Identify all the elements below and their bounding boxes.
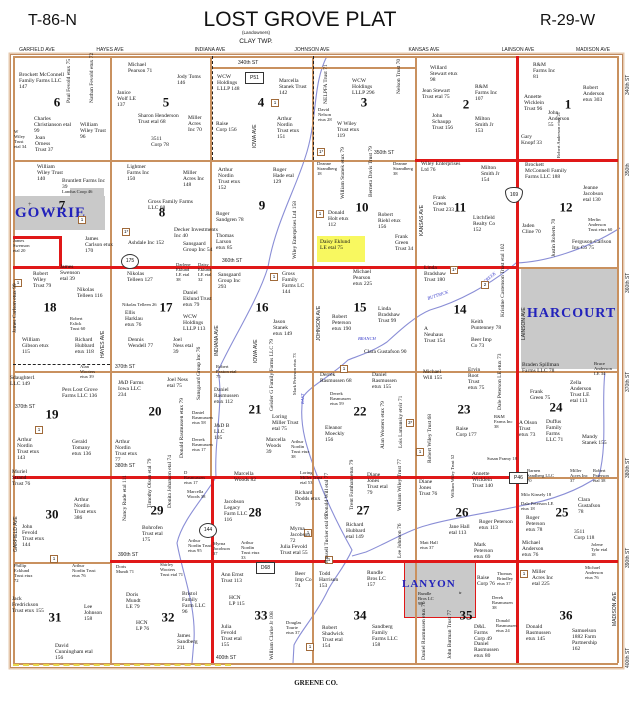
- parcel-label: Brockett McConnell Family Farms LLC 188: [525, 162, 569, 180]
- parcel-label: Thomas Larson etux 85: [216, 233, 242, 251]
- parcel-label: Daisy Eklund LE etal 32: [198, 262, 217, 282]
- parcel-label: Ellis Harklau etux 76: [125, 310, 151, 328]
- section-number: 3: [361, 96, 368, 109]
- parcel-label: Bruce Anderson LE 34: [594, 361, 615, 376]
- parcel-label: Annette Wicklein Trust 140: [472, 471, 500, 489]
- parcel-label: Milton Smith Jr 153: [475, 116, 503, 134]
- parcel-label: Michael Will 155: [423, 369, 447, 381]
- section-badge: 2: [481, 281, 489, 289]
- section-badge: 3*: [406, 419, 414, 427]
- road-label: GARFIELD AVE: [14, 516, 19, 552]
- parcel-label: Timothy Olson etal 79: [147, 459, 153, 508]
- parcel-label: Dennis Wendell 77: [128, 337, 154, 349]
- road: [516, 56, 519, 663]
- parcel-label: Robert Wiley Trust 79: [33, 271, 57, 289]
- parcel-label: Kristine Castenson Trust etal 102: [500, 244, 506, 317]
- parcel-label: Shirley Wooters Trust etal 71: [160, 562, 185, 577]
- parcel-label: Derrek Rasmussen etux 17: [192, 437, 211, 452]
- parcel-label: Bohrofen Trust etal 175: [142, 525, 170, 543]
- parcel-label: NELPFA Trust 71: [323, 64, 329, 104]
- road-label: 380th ST: [115, 464, 135, 469]
- parcel-label: Dale Peterson LE etux 73: [497, 353, 503, 410]
- parcel-label: David Cunningham etal 156: [55, 643, 93, 661]
- parcel-label: Frank Green Trust 233: [433, 195, 457, 213]
- highway-marker-175: 175: [121, 254, 139, 269]
- section-number: 20: [149, 405, 162, 418]
- road-label: 340th ST: [238, 61, 258, 66]
- section-number: 9: [259, 199, 266, 212]
- parcel-label: Trent Farnham etux 79: [349, 460, 355, 510]
- road-label: 370th ST: [15, 405, 35, 410]
- section-number: 23: [458, 403, 471, 416]
- parcel-label: William Wiley Trust 140: [37, 164, 65, 182]
- plat-map-page: T-86-N LOST GROVE PLAT (Landowners) CLAY…: [0, 0, 635, 720]
- parcel-label: R&M Farms Inc 81: [533, 62, 557, 80]
- road: [617, 56, 619, 663]
- parcel-label: A Olson Trust etux 73: [519, 420, 541, 438]
- parcel-label: John Schaupp Trust 156: [432, 113, 460, 131]
- road: [516, 267, 618, 269]
- parcel-label: Lee Johnson 158: [84, 604, 110, 622]
- parcel-label: Daniel Rasmussen etux 112: [214, 387, 242, 405]
- parcel-label: Michael Pearson 71: [128, 62, 160, 74]
- parcel-label: Lee Johnson 76: [397, 523, 403, 558]
- parcel-label: Myrna Jacobson 37: [213, 541, 235, 556]
- parcel-label: Marcella Stanek Trust 142: [279, 78, 307, 96]
- section-number: 19: [46, 408, 59, 421]
- parcel-label: Miller Acres Inc 37: [570, 468, 590, 483]
- parcel-label: Sharon Henderson Trust etal 68: [138, 113, 182, 125]
- highway-marker-P46: P46: [509, 472, 528, 484]
- town-label-harcourt: HARCOURT: [527, 306, 616, 322]
- parcel-label: Raise Corp 156: [216, 121, 238, 133]
- section-number: 1: [565, 98, 572, 111]
- parcel-label: Robert Peterson etal 38: [593, 468, 613, 483]
- parcel-label: Sansgaard Group Inc 76: [196, 347, 202, 400]
- parcel-label: Marcella Woods 39: [266, 437, 288, 455]
- parcel-label: Samuelson 1882 Farm Partnership 162: [572, 628, 606, 652]
- parcel-label: Frank Green 75: [530, 389, 552, 401]
- town-label-lanyon: LANYON: [402, 578, 456, 590]
- parcel-label: Milo Kinsely 18: [521, 492, 561, 497]
- parcel-label: Rundle Bros LC 157: [367, 570, 389, 588]
- parcel-label: Duffus Family Farms LLC 71: [546, 419, 570, 443]
- parcel-label: W Wiley Trust etux 119: [337, 121, 361, 139]
- parcel-label: Pers Lost Grove Farms LLC 136: [62, 387, 106, 399]
- parcel-label: Gross Family Farms LLC 68: [148, 199, 204, 211]
- parcel-label: Julia Fevold Trust etal 55: [280, 544, 308, 556]
- parcel-label: Susan Framy 18: [487, 456, 517, 461]
- road: [212, 56, 213, 160]
- parcel-label: Arthur Nordin Trust etux 38: [291, 439, 310, 459]
- section-number: 33: [255, 609, 268, 622]
- parcel-label: John Burman Trust 77: [447, 610, 453, 659]
- parcel-label: Nathan Fevold etux 72: [89, 53, 95, 103]
- parcel-label: Daniel Rasmussen etux 80: [474, 641, 502, 659]
- parcel-label: Nancy Rude etal 111: [122, 475, 128, 521]
- parcel-label: Arthur Nordin Trust etux 76: [72, 563, 98, 578]
- parcel-label: Deanne Strandberg 38: [393, 161, 414, 176]
- parcel-label: Sansgaard Group Inc 293: [218, 272, 244, 290]
- parcel-label: Braden Spillman Farms LLC 78: [522, 362, 566, 374]
- parcel-label: Darlene Eklund LE etal 38: [176, 262, 195, 282]
- section-badge: 1: [270, 273, 278, 281]
- parcel-label: Donald Rasmussen etux 24: [496, 618, 515, 633]
- road: [211, 477, 214, 663]
- road: [13, 160, 415, 162]
- parcel-label: Robert Peterson etux 190: [332, 314, 358, 332]
- section-badge: 1: [316, 210, 324, 218]
- road-label: INDIANA AVE: [195, 48, 226, 53]
- parcel-label: Donald Will etal 77: [324, 473, 330, 516]
- highway-marker-D68: D68: [256, 562, 275, 574]
- parcel-label: Gross Family Farms LC 144: [282, 271, 306, 295]
- section-number: 16: [256, 301, 269, 314]
- parcel-label: Zella Anderson Trust LE etal 113: [570, 380, 598, 404]
- parcel-label: Wiley Enterprises Ltd 158: [292, 201, 298, 259]
- road-label: INDIANA AVE: [215, 325, 220, 356]
- road-label: JOHNSON AVE: [294, 48, 329, 53]
- section-badge: 1: [306, 643, 314, 651]
- road-label: 380th ST: [626, 458, 631, 478]
- section-number: 24: [550, 401, 563, 414]
- parcel-label: Michael Pearson etux 225: [353, 269, 381, 287]
- section-number: 35: [460, 609, 473, 622]
- parcel-label: Arthur Nordin Trust etux 33: [241, 540, 261, 560]
- parcel-label: WCW Holdings LLLP 113: [183, 314, 213, 332]
- parcel-label: Roger Peterson etux 113: [479, 519, 523, 531]
- parcel-label: David Nelson etux 28: [318, 107, 338, 122]
- parcel-label: D Rasmussen etux 17: [184, 470, 201, 485]
- parcel-label: Lightner Farms Inc 150: [127, 164, 155, 182]
- parcel-label: Julia Fevold Trust etal 155: [221, 624, 245, 648]
- parcel-label: Richard Hubbard etal 149: [346, 522, 374, 540]
- parcel-label: Mark Peterson etux 73: [292, 353, 297, 395]
- parcel-label: Geisler G Family Farms LLC 79: [269, 339, 275, 411]
- section-number: 15: [354, 301, 367, 314]
- road-label: 400th ST: [626, 648, 631, 668]
- parcel-label: Muriel Strand Trust 76: [12, 469, 36, 487]
- parcel-label: Linda Bradshaw Trust 99: [378, 306, 406, 324]
- road-label: IOWA AVE: [254, 339, 259, 363]
- parcel-label: Diane Jones Trust etal 79: [367, 472, 391, 496]
- parcel-label: Derrek Rasmussen 68: [320, 372, 360, 384]
- county-label: GREENE CO.: [294, 679, 338, 687]
- road-label: 350th ST: [374, 151, 394, 156]
- parcel-label: Landus Coop 46: [62, 189, 108, 194]
- parcel-label: A Neuhaus Trust 154: [424, 326, 448, 344]
- creek-label: BRANCH: [358, 337, 376, 342]
- road-label: 370th ST: [626, 372, 631, 392]
- parcel-label: Eleanor Moeckly 156: [325, 425, 353, 443]
- parcel-label: Robert Riehl etux 156: [378, 212, 402, 230]
- road-label: GARFIELD AVE: [19, 48, 55, 53]
- section-badge: 1: [35, 426, 43, 434]
- parcel-label: Arthur Nordin Trust etux 77: [115, 439, 143, 463]
- parcel-label: Berneta Davis Trust 79: [368, 146, 374, 197]
- parcel-label: Dale Peterson LE etux 18: [521, 501, 561, 511]
- road: [13, 664, 231, 666]
- road-label: LAINSON AVE: [522, 307, 527, 340]
- parcel-label: Frank Green Trust 34: [395, 234, 417, 252]
- parcel-label: Nikolas Telleen 127: [127, 271, 155, 283]
- parcel-label: 3511 Corp 118: [574, 529, 596, 541]
- parcel-label: Jaden Cline 70: [522, 223, 544, 235]
- parcel-label: Litchfield Realty Co 152: [473, 215, 501, 233]
- parcel-label: Joan Orness Trust 37: [35, 135, 61, 153]
- parcel-label: Nikolas Telleen 26: [122, 302, 162, 307]
- road: [110, 56, 112, 663]
- parcel-label: Jody Toms 146: [177, 74, 201, 86]
- parcel-label: Thomas Brindley etux 37: [497, 571, 516, 586]
- parcel-label: Roger Sandgren 78: [216, 211, 244, 223]
- parcel-label: Robert Paxton etal 75: [216, 364, 240, 379]
- parcel-label: Ervin Root Trust etux 75: [468, 367, 490, 391]
- parcel-label: HCN LP 115: [229, 595, 247, 607]
- section-badge: 1: [416, 448, 424, 456]
- parcel-label: Michael Anderson etux 76: [585, 565, 611, 580]
- parcel-label: Gerald Tomany etux 136: [72, 439, 100, 457]
- parcel-label: Joel Ness etal 75: [167, 377, 189, 389]
- parcel-label: Joel Ness etal 39: [173, 337, 193, 355]
- parcel-label: Jolene Tyhr etal 18: [591, 542, 611, 557]
- parcel-label: R&M Farms Inc 107: [475, 84, 499, 102]
- parcel-label: Derek Rasmussen 38: [492, 595, 513, 610]
- parcel-label: Jason Stanek etux 149: [273, 319, 297, 337]
- parcel-label: Doris Mundt LE 79: [126, 592, 148, 610]
- road: [110, 560, 618, 563]
- parcel-label: Jacobson Legacy Farm LLC 116: [224, 499, 252, 523]
- parcel-label: Lois Lamansky etvir 71: [398, 396, 404, 448]
- parcel-label: Phillip Ecklund Trust etux 72: [14, 563, 38, 583]
- parcel-label: Sandberg Family Farms LLC 158: [372, 624, 400, 648]
- section-badge: 1: [520, 570, 528, 578]
- town-label-gowrie: GOWRIE: [15, 205, 86, 222]
- parcel-label: Miller Acres Inc etal 225: [532, 569, 556, 587]
- section-badge: 1*: [122, 228, 130, 236]
- parcel-label: John Fevold Trust etux 144: [22, 524, 46, 548]
- parcel-label: J&D Farms Iowa LLC 234: [118, 380, 144, 398]
- road: [13, 56, 618, 58]
- parcel-label: William Wiley Trust 77: [397, 459, 403, 511]
- section-number: 30: [46, 508, 59, 521]
- parcel-label: James Swenson etal 39: [60, 264, 86, 282]
- parcel-label: Miller Acres Inc 70: [188, 115, 208, 133]
- road-label: KANSAS AVE: [408, 48, 439, 53]
- parcel-label: Arthur Nordin Trust etux 143: [17, 437, 43, 461]
- parcel-label: Mandy Stanek 155: [582, 434, 608, 446]
- parcel-label: Robert Anderson etux 303: [583, 85, 613, 103]
- parcel-label: Raise Corp 177: [456, 426, 478, 438]
- road-label: MADISON AVE: [613, 592, 618, 626]
- section-number: 6: [54, 96, 61, 109]
- parcel-label: Doris Mundt 71: [116, 564, 138, 574]
- parcel-label: 3511 Corp 78: [151, 136, 173, 148]
- parcel-label: Robert Wiley Trust 68: [427, 414, 433, 463]
- parcel-label: James Carlson etux 99: [12, 283, 18, 333]
- parcel-label: Donald Rasmussen etux 145: [526, 624, 554, 642]
- road-label: 370th ST: [115, 365, 135, 370]
- section-badge: 1: [78, 216, 86, 224]
- road-label: HAYES AVE: [96, 48, 123, 53]
- parcel-label: Raise Corp 76: [477, 575, 497, 587]
- parcel-label: Russell Tucker etal 69: [324, 514, 330, 563]
- parcel-label: tr: [459, 590, 469, 595]
- parcel-label: Mark Peterson etux 69: [474, 542, 500, 560]
- section-number: 4: [258, 96, 265, 109]
- road-label: 360th ST: [222, 259, 242, 264]
- section-number: 22: [354, 405, 367, 418]
- section-number: 27: [357, 504, 370, 517]
- road-label: JOHNSON AVE: [317, 306, 322, 341]
- parcel-label: Ashdale Inc 152: [128, 240, 168, 246]
- section-number: 32: [162, 611, 175, 624]
- parcel-label: Diane Jones Trust 76: [419, 479, 443, 497]
- parcel-label: Jack Fredrickson Trust etux 155: [12, 596, 44, 614]
- highway-marker-144: 144: [199, 523, 217, 538]
- parcel-label: Charles Christianson etal 99: [34, 116, 76, 134]
- parcel-label: Donita Johanson etal 74: [167, 455, 173, 508]
- parcel-label: Miller Acres Inc 148: [183, 170, 209, 188]
- parcel-label: Matt Hall etux 37: [420, 540, 440, 550]
- parcel-label: Robert Shadwick Trust etal 154: [322, 625, 350, 649]
- map-area: +++GOWRIEHARCOURTLANYONGARFIELD AVEHAYES…: [0, 0, 635, 720]
- parcel-label: Clara Gustafson 90: [364, 349, 408, 355]
- parcel-label: Daniel Rasmussen etux 155: [372, 372, 400, 390]
- parcel-label: Arthur Nordin Trust etux 151: [277, 116, 305, 140]
- road-label: 390th ST: [626, 548, 631, 568]
- parcel-label: Milton Smith Jr 154: [481, 165, 509, 183]
- parcel-label: Merlin Anderson Trust etux 60: [588, 217, 616, 232]
- creek-label: EAST: [301, 394, 306, 404]
- road-label: 340th ST: [626, 75, 631, 95]
- parcel-label: Daniel Eklund Trust etux 79: [183, 290, 213, 308]
- parcel-label: William Gibson etux 115: [22, 337, 50, 355]
- road-label: 390th ST: [118, 553, 138, 558]
- section-number: 36: [560, 609, 573, 622]
- parcel-label: Jean Stewart Trust etal 75: [422, 88, 460, 100]
- parcel-label: James Sandberg 211: [177, 633, 203, 651]
- road-label: MADISON AVE: [576, 48, 610, 53]
- section-badge: 1*: [317, 148, 325, 156]
- section-number: 5: [163, 96, 170, 109]
- parcel-label: Alan Wooters etux 39: [80, 364, 101, 379]
- parcel-label: WCW Holdings LLLP 148: [217, 74, 249, 92]
- parcel-label: William Wiley Trust 52: [450, 455, 455, 498]
- parcel-label: William Stanek etux 79: [340, 147, 346, 199]
- parcel-label: Daniel Rasmussen etux 58: [192, 410, 211, 425]
- parcel-label: James Swenson etal 20: [13, 238, 30, 253]
- road-label: 350th: [626, 163, 631, 176]
- section-number: 14: [454, 303, 467, 316]
- road-label: 400th ST: [216, 656, 236, 661]
- section-number: 7: [59, 199, 66, 212]
- parcel-label: Brockett McConnell Family Farms LLC 147: [19, 72, 67, 90]
- parcel-label: Robert Anderson etux 21: [556, 112, 561, 158]
- parcel-label: Deanne Strandberg 18: [317, 161, 338, 176]
- parcel-label: Daisy Eklund LE etal 75: [320, 239, 352, 251]
- road: [415, 56, 417, 663]
- parcel-label: Marcella Woods 82: [234, 471, 262, 483]
- section-number: 10: [356, 201, 369, 214]
- parcel-label: J&D B LLC 105: [214, 423, 232, 441]
- section-badge: 1: [50, 555, 58, 563]
- section-number: 31: [49, 611, 62, 624]
- parcel-label: Jeanne Jacobson etal 130: [583, 185, 611, 203]
- parcel-label: Loring Miller Trust etal 75: [272, 414, 300, 432]
- parcel-label: Arthur Nordin Trust etux 386: [74, 497, 102, 521]
- parcel-label: Paul Fevold etux 75: [66, 59, 72, 103]
- parcel-label: Keith Puntenney 78: [471, 319, 503, 331]
- parcel-label: Ann Ernst Trust 113: [221, 572, 245, 584]
- road: [59, 236, 62, 267]
- parcel-label: Justin Roberts 70: [551, 219, 557, 257]
- parcel-label: Donald Rasmussen etux 79: [179, 398, 185, 458]
- parcel-label: HCN LP 76: [136, 620, 154, 632]
- section-badge: 1: [271, 99, 279, 107]
- parcel-label: William Clarke Jr 108: [269, 611, 275, 660]
- parcel-label: Ferguson-Carlson Inv Co 75: [572, 239, 612, 251]
- road-label: KANSAS AVE: [420, 205, 425, 236]
- parcel-label: Richard Dodds etux 79: [295, 490, 321, 508]
- parcel-label: Donald Holt etux 112: [328, 210, 352, 228]
- parcel-label: Myrna Jacobson 72: [290, 526, 316, 544]
- parcel-label: Gary Knopf 33: [521, 134, 543, 146]
- road: [313, 56, 314, 160]
- parcel-label: Bristol Family Farm LLC 96: [182, 591, 206, 615]
- parcel-label: William Wiley Trust 96: [80, 122, 108, 140]
- parcel-label: Todd Harrison 153: [319, 571, 345, 589]
- parcel-label: James Carlson etux 170: [85, 236, 113, 254]
- section-number: 18: [44, 301, 57, 314]
- parcel-label: R&M Farms Inc 38: [494, 414, 515, 429]
- parcel-label: Derrek Rasmussen etux 59: [330, 391, 354, 406]
- section-number: 34: [354, 609, 367, 622]
- parcel-label: Beer Imp Co 74: [295, 571, 313, 589]
- parcel-label: Roger Hade etal 129: [273, 167, 299, 185]
- parcel-label: Daniel Rasmussen etux 76: [421, 601, 427, 660]
- section-number: 26: [456, 506, 469, 519]
- parcel-label: Barnen Sandberg LLC 70: [527, 468, 555, 483]
- parcel-label: Clara Gustafson 78: [578, 497, 606, 515]
- parcel-label: Nelson Trust 70: [396, 59, 402, 94]
- parcel-label: Roger Peterson etux 78: [526, 515, 552, 533]
- parcel-label: Wiley Enterprises Ltd 76: [421, 161, 461, 173]
- parcel-label: Janice Wolf LE 137: [117, 90, 141, 108]
- parcel-label: Sdaughter1 LLC 149: [10, 375, 46, 387]
- parcel-label: Richard Hubbard etux 118: [75, 337, 105, 355]
- parcel-label: Arthur Nordin Trust etux 95: [188, 538, 214, 553]
- section-number: 21: [249, 403, 262, 416]
- parcel-label: Alan Wooters etux 79: [380, 401, 386, 449]
- parcel-label: Douglas Tourte etux 37: [286, 620, 306, 635]
- parcel-label: Beer Imp Co 73: [471, 337, 499, 349]
- parcel-label: Nikolas Telleen 116: [77, 287, 105, 299]
- road-label: IOWA AVE: [253, 124, 258, 148]
- parcel-label: Jane Hall etal 113: [449, 524, 471, 536]
- parcel-label: Robert Eslick Trust 60: [70, 316, 92, 331]
- parcel-label: Marcella Woods 38: [187, 489, 209, 499]
- parcel-label: Arthur Nordin Trust etux 152: [218, 167, 244, 191]
- parcel-label: Michael Anderson etux 76: [522, 540, 550, 558]
- road-label: LAINSON AVE: [502, 48, 535, 53]
- parcel-label: Linda Bradshaw Trust 180: [424, 265, 452, 283]
- section-number: 2: [463, 98, 470, 111]
- parcel-label: Willard Stewart etux 98: [430, 65, 458, 83]
- parcel-label: Sansgaard Group Inc 54: [183, 241, 217, 253]
- parcel-label: Loring Miller Trust etal 53: [300, 470, 324, 485]
- road-label: 360th ST: [626, 273, 631, 293]
